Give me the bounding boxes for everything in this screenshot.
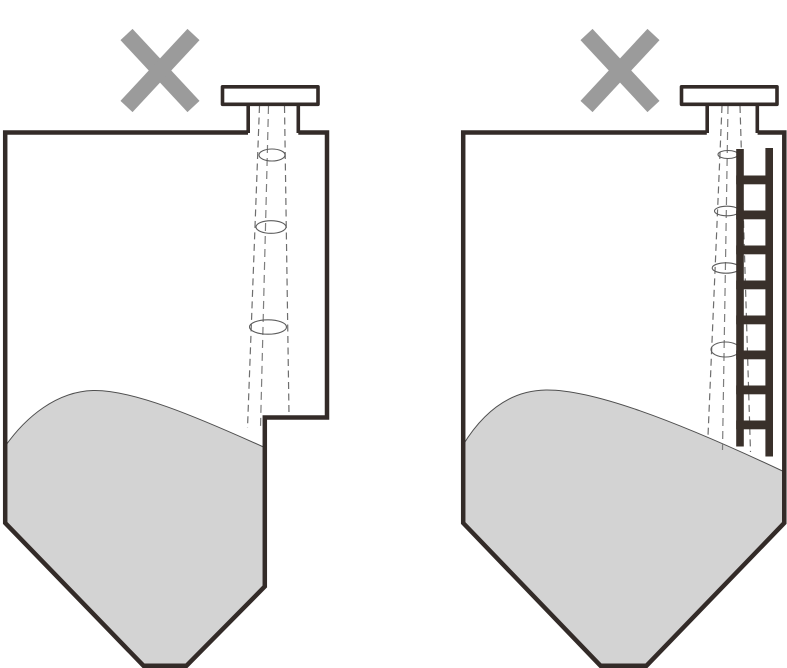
- radar-level-sensor-left: [223, 1, 319, 133]
- installation-diagram: [0, 0, 787, 668]
- beam-edge-left: [248, 106, 260, 428]
- signal-beam-right: [708, 106, 751, 452]
- ladder-left-rail: [736, 149, 744, 447]
- beam-cross-section: [715, 206, 740, 216]
- beam-edge-right: [285, 106, 290, 415]
- material-heap-left: [5, 390, 264, 664]
- ladder-rung: [736, 176, 773, 185]
- ladder-rung: [736, 211, 773, 220]
- radar-level-sensor-right: [682, 1, 778, 133]
- beam-cross-section: [711, 342, 740, 357]
- beam-cross-section: [256, 221, 286, 234]
- ladder-rung: [736, 316, 773, 325]
- beam-cross-section: [718, 151, 738, 159]
- ladder-rung: [736, 246, 773, 255]
- ladder-rung: [736, 421, 773, 430]
- ladder-rung: [736, 281, 773, 290]
- incorrect-cross-mark-right: [587, 35, 654, 107]
- ladder-rung: [736, 351, 773, 360]
- beam-axis: [261, 106, 269, 428]
- beam-cross-section: [250, 320, 287, 334]
- material-heap-right: [463, 390, 783, 665]
- incorrect-cross-mark-left: [127, 35, 194, 107]
- beam-cross-sections-left: [250, 149, 287, 334]
- internal-ladder: [736, 148, 773, 457]
- diagram-stage: [0, 0, 787, 668]
- panel-left-step-obstruction: [5, 1, 327, 666]
- ladder-right-rail: [765, 148, 773, 457]
- beam-cross-section: [259, 149, 285, 161]
- signal-beam-left: [248, 106, 290, 428]
- panel-right-ladder-obstruction: [463, 1, 784, 666]
- ladder-rung: [736, 386, 773, 395]
